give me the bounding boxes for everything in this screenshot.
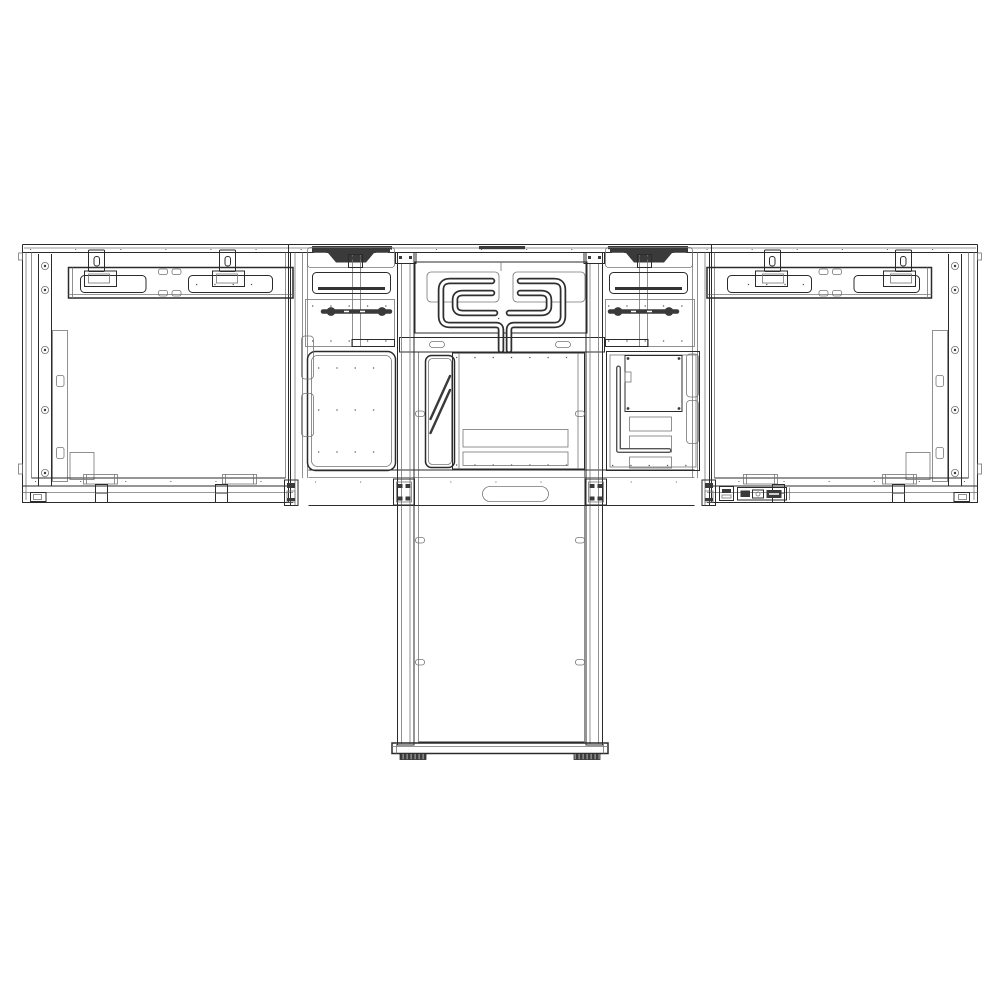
brace-panel: [426, 356, 455, 468]
ac-inlet: [741, 491, 751, 498]
cable-management-panel: [415, 262, 587, 350]
column-leg-right: [576, 253, 607, 746]
column-leg-left: [394, 253, 425, 746]
l-bar: [619, 368, 670, 451]
vent-patch: [630, 417, 672, 431]
base-plate: [392, 743, 608, 754]
io-connector-strip: [720, 487, 790, 501]
drawing-stage: Technical line drawing, rear view: dual …: [0, 0, 1000, 1000]
leveling-foot-left: [400, 754, 426, 760]
vent-patch: [630, 457, 672, 468]
vent-strip: [463, 430, 568, 448]
left-sub-bay: [302, 254, 396, 471]
lower-band: [309, 470, 695, 506]
center-vent-panel: [453, 353, 585, 469]
connector-rod-right: [610, 307, 677, 316]
cable-loops: [441, 281, 563, 350]
right-sub-bay: [606, 254, 700, 471]
technical-drawing: Technical line drawing, rear view: dual …: [0, 0, 1000, 1000]
connector-rod-left: [323, 307, 390, 316]
vent-strip: [463, 452, 568, 466]
rail-recess-center: [479, 246, 525, 249]
slot-frame-left: [313, 273, 391, 294]
top-trim-rail: [23, 245, 978, 253]
leveling-foot-right: [574, 754, 600, 760]
right-electronics-panel: [607, 352, 700, 471]
right-display-panel: [707, 245, 982, 504]
capsule-vent: [483, 487, 549, 502]
slot-frame-right: [610, 273, 688, 294]
cover-plate: [625, 356, 682, 412]
switch: [753, 490, 764, 498]
base-assembly: [392, 743, 608, 760]
left-access-panel: [308, 352, 396, 471]
center-bay: [285, 248, 716, 743]
left-display-panel: [19, 245, 294, 504]
